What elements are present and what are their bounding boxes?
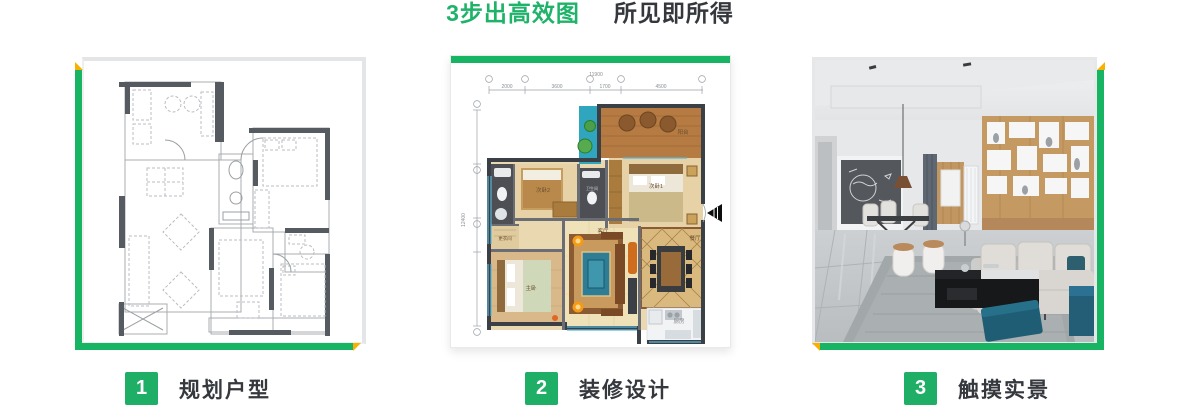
svg-text:客厅: 客厅 (597, 227, 609, 235)
panel-step2-color-floorplan: 11900 2000 3600 1700 4500 12400 (450, 55, 731, 348)
panel3-green-bottom-bar (820, 343, 1104, 350)
step-2: 2 装修设计 (525, 372, 671, 405)
svg-text:12400: 12400 (461, 212, 467, 226)
step-2-number-badge: 2 (525, 372, 558, 405)
step-2-label: 装修设计 (579, 374, 671, 404)
page-title-highlight: 3步出高效图 (446, 0, 580, 26)
svg-text:2000: 2000 (501, 84, 512, 90)
svg-text:更衣间: 更衣间 (498, 235, 512, 242)
living-room-render-image (815, 60, 1094, 342)
panel3-green-right-bar (1097, 70, 1104, 346)
svg-text:次卧1: 次卧1 (649, 182, 663, 190)
panel1-green-left-bar (75, 70, 82, 346)
svg-text:次卧2: 次卧2 (536, 186, 550, 194)
color-floorplan-image: 11900 2000 3600 1700 4500 12400 (451, 68, 730, 344)
svg-text:厨房: 厨房 (673, 317, 685, 325)
panel-step1-cad-floorplan (75, 57, 366, 353)
step-3-label: 触摸实景 (958, 374, 1050, 404)
svg-text:11900: 11900 (589, 72, 603, 78)
render-photo-card (812, 57, 1097, 345)
svg-text:卫生间: 卫生间 (586, 185, 598, 191)
svg-text:3600: 3600 (551, 84, 562, 90)
page-title: 3步出高效图所见即所得 (0, 0, 1180, 27)
panel-step3-render-photo (812, 57, 1104, 353)
svg-text:餐厅: 餐厅 (689, 234, 701, 242)
step-1-label: 规划户型 (179, 374, 271, 404)
svg-text:主卧: 主卧 (525, 284, 537, 292)
panel1-yellow-corner-bottom (353, 343, 361, 351)
svg-text:4500: 4500 (655, 84, 666, 90)
svg-text:阳台: 阳台 (677, 128, 689, 136)
step-3: 3 触摸实景 (904, 372, 1050, 405)
page-title-rest: 所见即所得 (614, 0, 734, 26)
cad-floorplan-image (89, 68, 357, 336)
step-1: 1 规划户型 (125, 372, 271, 405)
cad-floorplan-card (82, 57, 366, 344)
panel2-green-top-bar (451, 56, 730, 63)
panel3-yellow-corner-top (1097, 62, 1105, 70)
svg-text:1700: 1700 (599, 84, 610, 90)
color-floorplan-card: 11900 2000 3600 1700 4500 12400 (451, 63, 730, 348)
panel1-yellow-corner-top (75, 62, 83, 70)
panel3-yellow-corner-bottom (812, 343, 820, 351)
step-1-number-badge: 1 (125, 372, 158, 405)
panel1-green-bottom-bar (75, 343, 353, 350)
step-3-number-badge: 3 (904, 372, 937, 405)
